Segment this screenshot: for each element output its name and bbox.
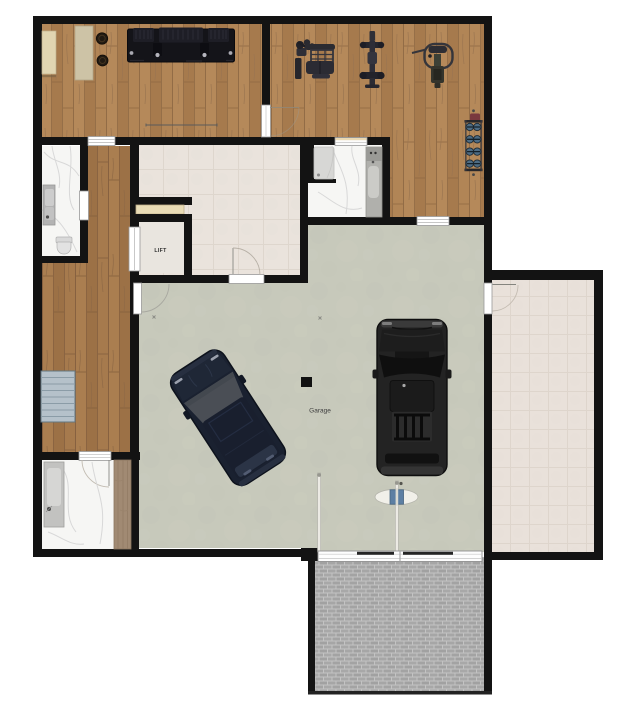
svg-text:Garage: Garage <box>309 408 331 415</box>
svg-text:LIFT: LIFT <box>154 248 167 254</box>
